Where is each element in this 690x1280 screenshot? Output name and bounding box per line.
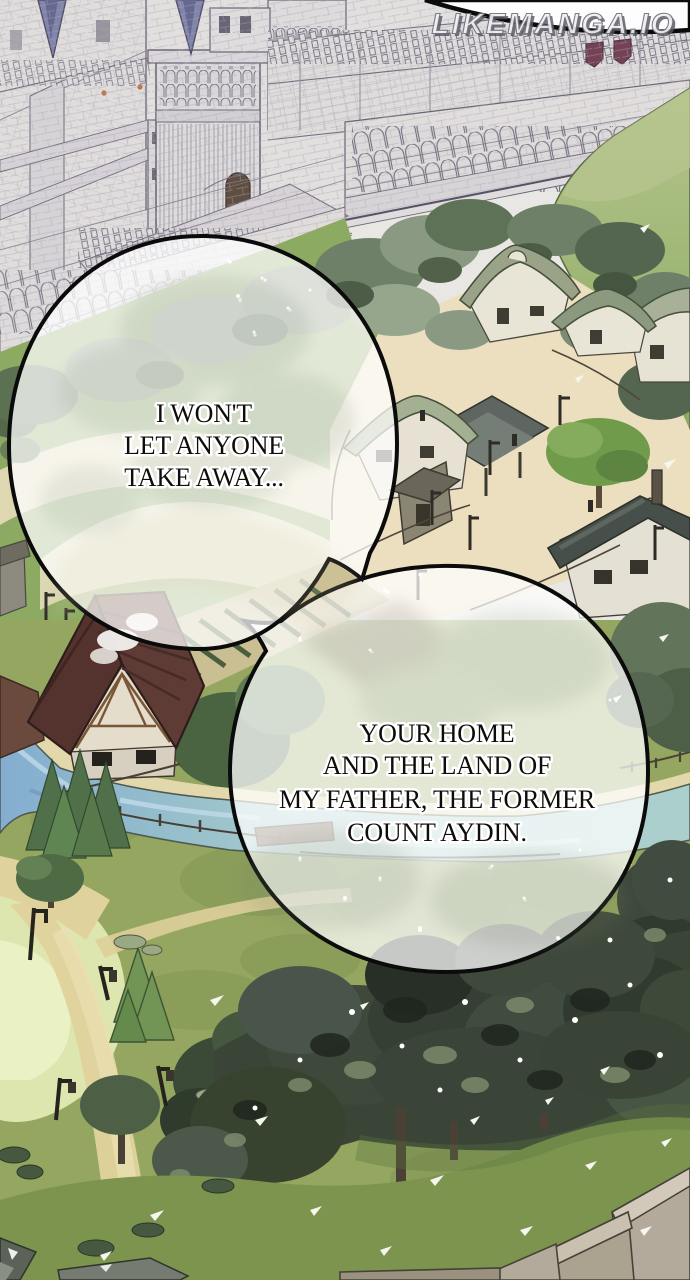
svg-text:LIKEMANGA.IO: LIKEMANGA.IO	[432, 9, 676, 41]
svg-text:COUNT AYDIN.: COUNT AYDIN.	[347, 818, 527, 847]
svg-text:MY FATHER, THE FORMER: MY FATHER, THE FORMER	[279, 785, 596, 814]
svg-text:AND THE LAND OF: AND THE LAND OF	[323, 751, 551, 780]
svg-text:YOUR HOME: YOUR HOME	[360, 719, 515, 748]
svg-text:TAKE AWAY...: TAKE AWAY...	[124, 463, 284, 492]
svg-text:LET ANYONE: LET ANYONE	[124, 431, 284, 460]
svg-text:I WON'T: I WON'T	[156, 399, 252, 428]
